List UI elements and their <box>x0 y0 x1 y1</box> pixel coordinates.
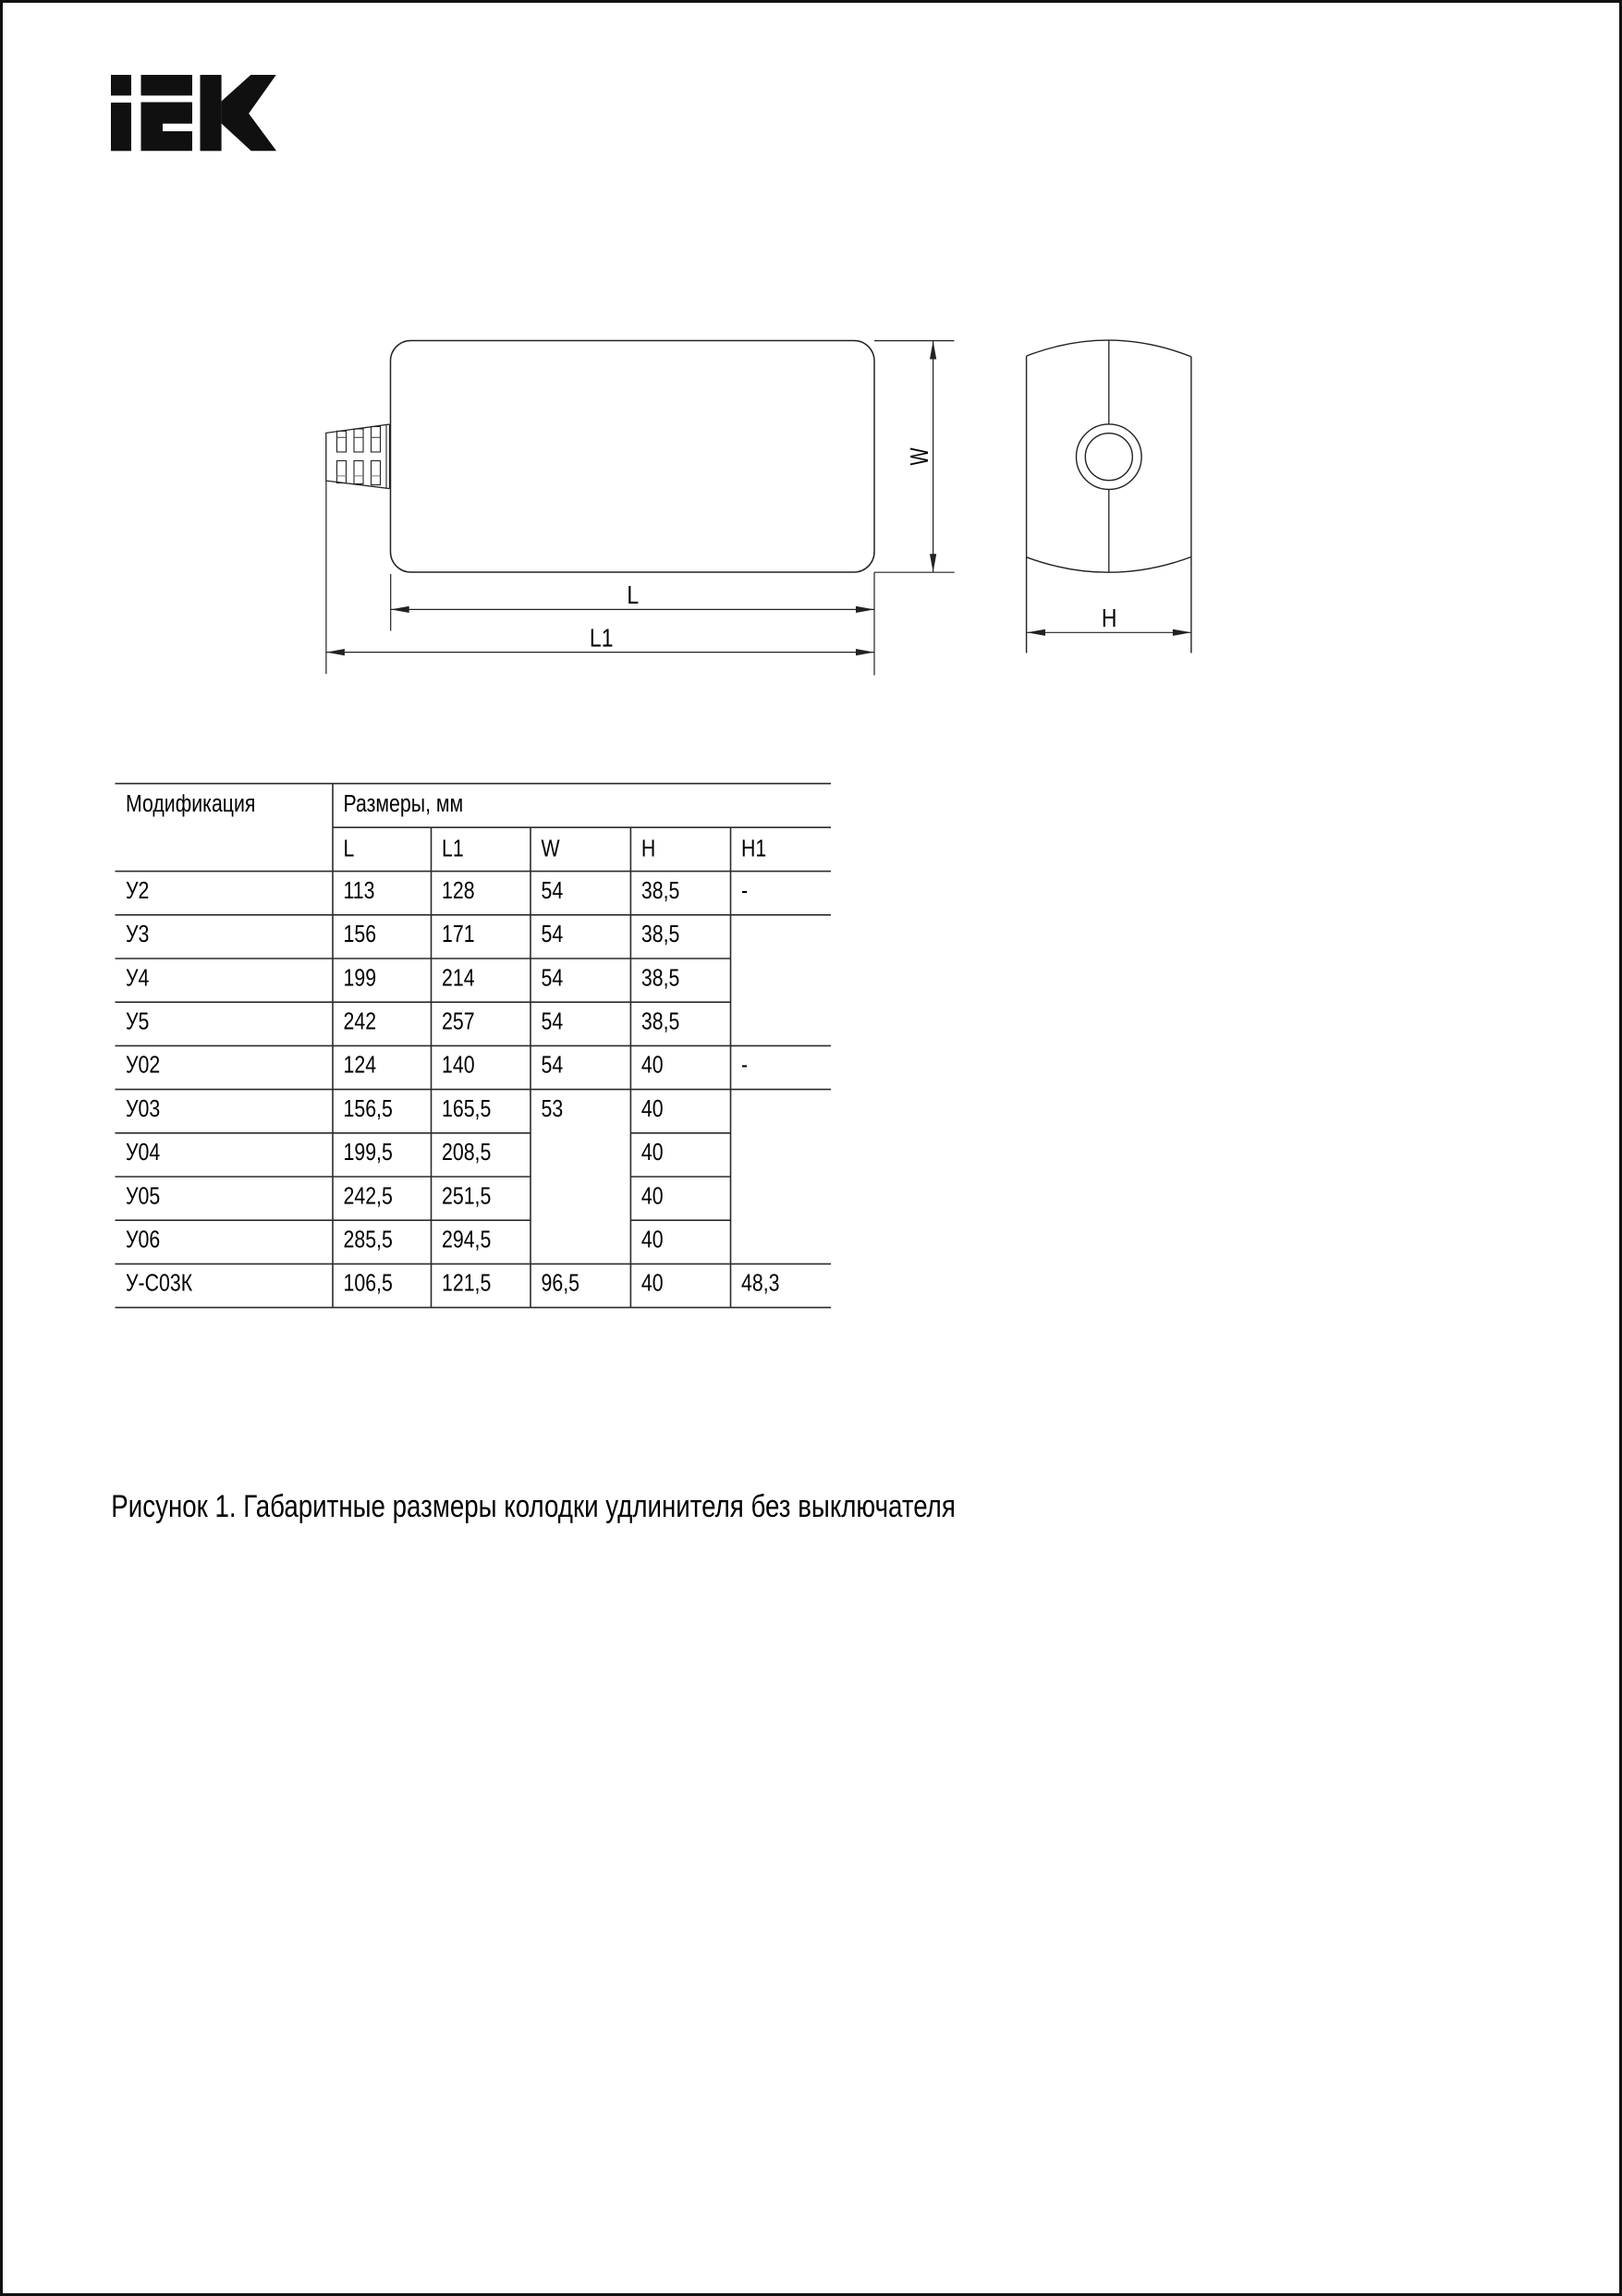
svg-text:38,5: 38,5 <box>641 1008 679 1036</box>
svg-text:257: 257 <box>442 1008 475 1036</box>
svg-text:40: 40 <box>641 1270 664 1298</box>
svg-text:-: - <box>741 877 748 905</box>
svg-text:Модификация: Модификация <box>126 790 255 818</box>
svg-text:113: 113 <box>344 877 375 905</box>
svg-text:40: 40 <box>641 1182 664 1210</box>
svg-text:54: 54 <box>542 964 564 992</box>
svg-text:38,5: 38,5 <box>641 877 679 905</box>
svg-text:199,5: 199,5 <box>344 1139 393 1166</box>
svg-text:54: 54 <box>542 1052 564 1080</box>
svg-text:156: 156 <box>344 921 377 948</box>
svg-text:124: 124 <box>344 1052 377 1080</box>
svg-text:294,5: 294,5 <box>442 1227 491 1254</box>
svg-text:121,5: 121,5 <box>442 1270 491 1298</box>
svg-text:H: H <box>641 836 655 863</box>
svg-text:W: W <box>542 836 561 863</box>
svg-text:У02: У02 <box>126 1052 160 1080</box>
svg-text:H: H <box>1102 605 1117 633</box>
svg-text:38,5: 38,5 <box>641 921 679 948</box>
svg-text:У4: У4 <box>126 964 149 992</box>
svg-text:285,5: 285,5 <box>344 1227 393 1254</box>
svg-text:H1: H1 <box>741 836 766 863</box>
svg-text:48,3: 48,3 <box>741 1270 779 1298</box>
svg-text:54: 54 <box>542 921 564 948</box>
svg-text:128: 128 <box>442 877 475 905</box>
svg-text:У06: У06 <box>126 1227 160 1254</box>
svg-text:40: 40 <box>641 1139 664 1166</box>
svg-text:У2: У2 <box>126 877 149 905</box>
svg-text:156,5: 156,5 <box>344 1095 393 1123</box>
svg-text:Размеры, мм: Размеры, мм <box>344 790 464 818</box>
svg-text:У5: У5 <box>126 1008 149 1036</box>
svg-text:199: 199 <box>344 964 377 992</box>
svg-text:L1: L1 <box>590 625 614 653</box>
svg-text:53: 53 <box>542 1095 564 1123</box>
svg-text:171: 171 <box>442 921 475 948</box>
svg-text:L: L <box>627 581 639 610</box>
svg-text:40: 40 <box>641 1095 664 1123</box>
svg-text:У-С03К: У-С03К <box>126 1270 192 1298</box>
svg-text:140: 140 <box>442 1052 475 1080</box>
svg-text:У05: У05 <box>126 1182 160 1210</box>
svg-text:38,5: 38,5 <box>641 964 679 992</box>
svg-text:214: 214 <box>442 964 475 992</box>
svg-text:96,5: 96,5 <box>542 1270 579 1298</box>
svg-text:У03: У03 <box>126 1095 160 1123</box>
svg-text:W: W <box>906 447 934 465</box>
svg-text:165,5: 165,5 <box>442 1095 491 1123</box>
svg-text:L: L <box>344 836 355 863</box>
svg-text:54: 54 <box>542 1008 564 1036</box>
svg-text:208,5: 208,5 <box>442 1139 491 1166</box>
svg-text:У04: У04 <box>126 1139 160 1166</box>
svg-text:251,5: 251,5 <box>442 1182 491 1210</box>
svg-text:106,5: 106,5 <box>344 1270 393 1298</box>
svg-text:40: 40 <box>641 1227 664 1254</box>
svg-text:242: 242 <box>344 1008 377 1036</box>
svg-text:40: 40 <box>641 1052 664 1080</box>
svg-text:L1: L1 <box>442 836 464 863</box>
svg-text:54: 54 <box>542 877 564 905</box>
svg-text:242,5: 242,5 <box>344 1182 393 1210</box>
svg-text:У3: У3 <box>126 921 149 948</box>
svg-text:-: - <box>741 1052 748 1080</box>
svg-text:Рисунок 1. Габаритные размеры: Рисунок 1. Габаритные размеры колодки уд… <box>111 1488 956 1523</box>
